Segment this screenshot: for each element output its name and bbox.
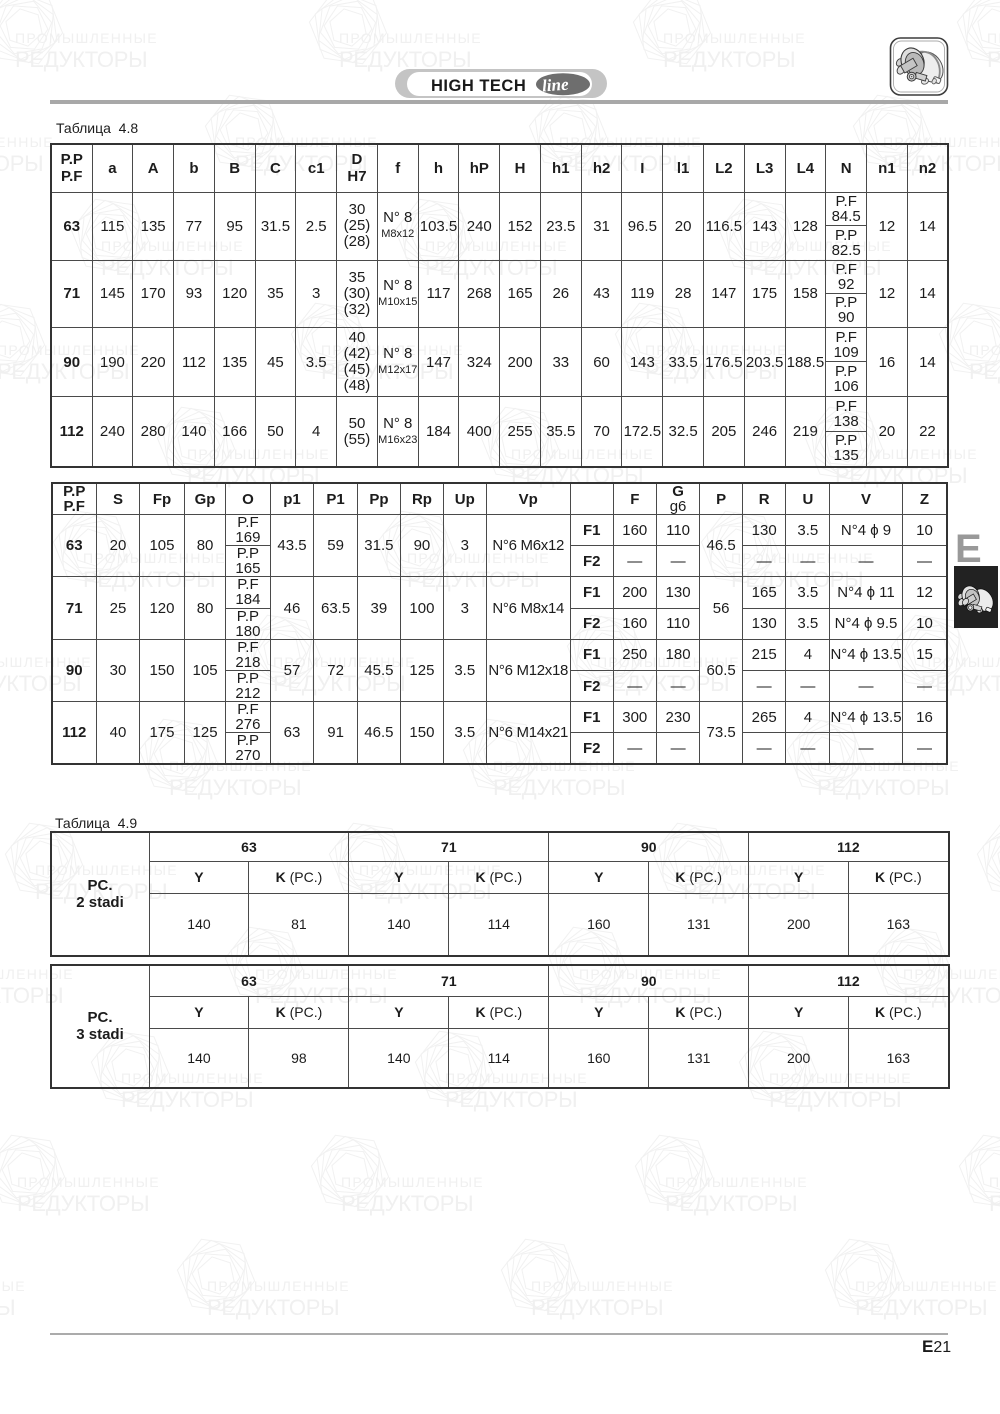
svg-text:line: line xyxy=(541,75,569,96)
